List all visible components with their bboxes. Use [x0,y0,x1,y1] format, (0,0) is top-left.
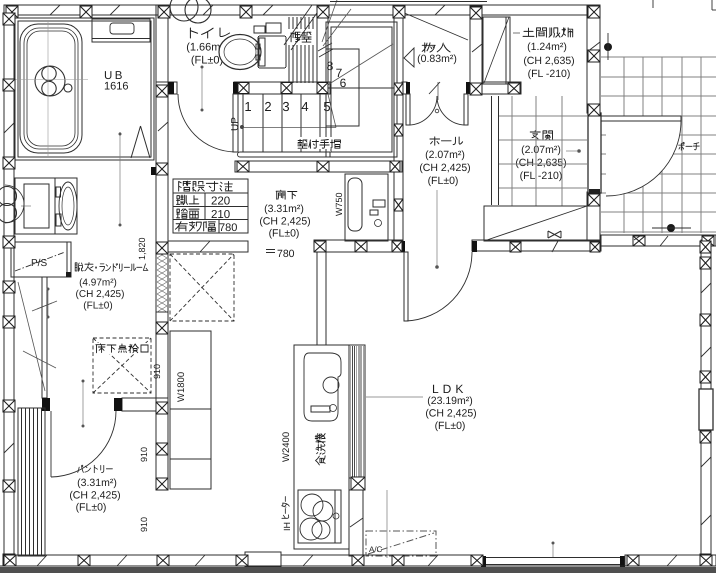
svg-text:3: 3 [282,99,289,114]
svg-text:(CH 2,635): (CH 2,635) [515,157,566,169]
svg-text:(FL±0): (FL±0) [191,55,223,67]
svg-text:(CH 2,425): (CH 2,425) [425,408,476,420]
svg-text:(CH 2,425): (CH 2,425) [69,490,120,502]
svg-text:(3.31m²): (3.31m²) [264,203,304,215]
svg-text:(FL±0): (FL±0) [83,301,112,312]
svg-text:(4.97m²): (4.97m²) [79,278,117,289]
svg-text:(FL -210): (FL -210) [528,68,571,80]
svg-text:IH: IH [282,522,292,531]
svg-text:UP: UP [230,117,241,131]
svg-text:210: 210 [211,209,230,221]
svg-text:780: 780 [277,248,295,260]
svg-text:780: 780 [219,222,237,234]
svg-text:910: 910 [139,447,149,462]
svg-text:4: 4 [301,99,308,114]
svg-text:(FL±0): (FL±0) [269,228,300,240]
svg-text:(FL -210): (FL -210) [520,170,563,182]
svg-text:(0.83m²): (0.83m²) [417,53,457,65]
svg-text:220: 220 [211,196,230,208]
svg-text:(3.31m²): (3.31m²) [77,477,117,489]
svg-text:W1800: W1800 [176,372,187,402]
svg-text:LDK: LDK [432,382,467,396]
svg-text:910: 910 [152,364,162,379]
svg-text:W2400: W2400 [281,432,292,462]
svg-text:1,820: 1,820 [137,237,147,260]
svg-text:W750: W750 [334,192,344,216]
svg-text:(FL±0): (FL±0) [428,175,459,187]
svg-text:(2.07m²): (2.07m²) [425,149,465,161]
svg-text:910: 910 [139,517,149,532]
svg-text:P/S: P/S [31,258,47,269]
svg-text:(CH 2,425): (CH 2,425) [419,162,470,174]
svg-text:1616: 1616 [104,81,128,93]
svg-text:A/C: A/C [369,545,383,554]
svg-text:(23.19m²): (23.19m²) [427,395,473,407]
svg-text:8: 8 [327,59,334,73]
svg-text:1: 1 [244,99,251,114]
svg-text:(1.24m²): (1.24m²) [527,41,567,53]
svg-text:2: 2 [264,99,271,114]
svg-text:(2.07m²): (2.07m²) [521,144,561,156]
svg-text:(FL±0): (FL±0) [76,502,107,514]
svg-text:(CH 2,635): (CH 2,635) [523,55,574,67]
svg-text:(CH 2,425): (CH 2,425) [259,216,310,228]
svg-text:(FL±0): (FL±0) [435,420,466,432]
svg-text:(CH 2,425): (CH 2,425) [76,289,125,300]
